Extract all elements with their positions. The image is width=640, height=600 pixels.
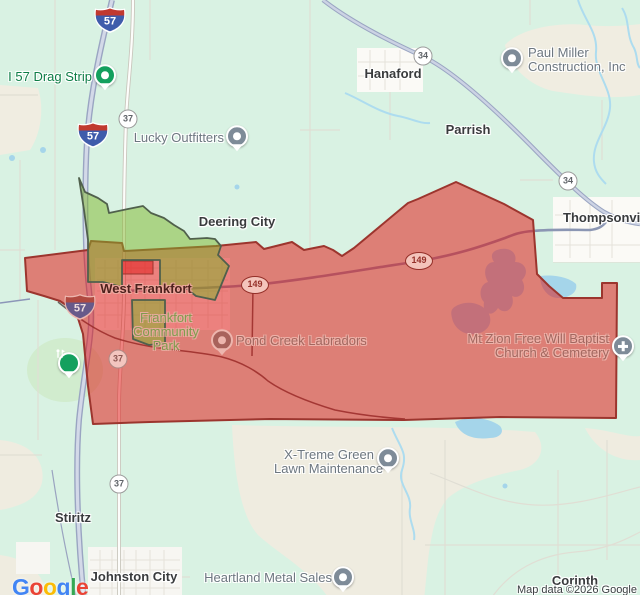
bottom-bar: [0, 595, 640, 600]
route-37-shield-tinted: 37: [109, 350, 128, 369]
route-149-shield: 149: [241, 276, 269, 294]
route-34-shield: 34: [414, 47, 433, 66]
poi-pin-mt-zion-church[interactable]: [612, 335, 634, 357]
poi-dot-icon: [233, 132, 241, 140]
poi-label-line: Lawn Maintenance: [274, 462, 374, 476]
town-label-johnston-city[interactable]: Johnston City: [91, 570, 178, 584]
poi-pin-pond-creek-labradors[interactable]: [211, 329, 233, 351]
poi-label-lucky-outfitters[interactable]: Lucky Outfitters: [127, 131, 224, 145]
poi-dot-icon: [218, 336, 226, 344]
poi-label-i57-drag-strip[interactable]: I 57 Drag Strip: [6, 70, 92, 84]
poi-dot-icon: [508, 54, 516, 62]
poi-label-line: Paul Miller: [528, 46, 626, 60]
route-34-shield: 34: [559, 172, 578, 191]
interstate-57-shield: 57: [94, 7, 126, 34]
poi-pin-lucky-outfitters[interactable]: [226, 125, 248, 147]
poi-pin-i57-drag-strip[interactable]: [94, 64, 116, 86]
interstate-57-shield-tinted: 57: [64, 294, 96, 321]
poi-pin-paul-miller[interactable]: [501, 47, 523, 69]
interstate-57-shield: 57: [77, 122, 109, 149]
poi-pin-xtreme-green[interactable]: [377, 447, 399, 469]
town-label-hanaford[interactable]: Hanaford: [364, 67, 421, 81]
park-label-line: Park: [133, 339, 199, 353]
poi-label-line: Church & Cemetery: [450, 346, 609, 360]
church-cross-icon: [614, 337, 632, 355]
map-canvas[interactable]: Hanaford Parrish Deering City West Frank…: [0, 0, 640, 600]
park-label-frankfort-community-park[interactable]: Frankfort Community Park: [133, 311, 199, 353]
town-label-thompsonville[interactable]: Thompsonville: [563, 211, 640, 225]
poi-dot-icon: [384, 454, 392, 462]
park-label-line: Community: [133, 325, 199, 339]
poi-dot-icon: [101, 71, 109, 79]
poi-label-xtreme-green[interactable]: X-Treme Green Lawn Maintenance: [274, 448, 374, 476]
route-149-shield: 149: [405, 252, 433, 270]
poi-label-pond-creek-labradors[interactable]: Pond Creek Labradors: [236, 334, 367, 348]
poi-label-line: Construction, Inc: [528, 60, 626, 74]
route-37-shield: 37: [119, 110, 138, 129]
poi-label-heartland-metal-sales[interactable]: Heartland Metal Sales: [194, 571, 332, 585]
town-label-stiritz[interactable]: Stiritz: [55, 511, 91, 525]
poi-label-line: Mt Zion Free Will Baptist: [450, 332, 609, 346]
poi-pin-golf-course[interactable]: [58, 352, 80, 374]
shield-number: 57: [94, 16, 126, 28]
town-label-parrish[interactable]: Parrish: [446, 123, 491, 137]
route-37-shield: 37: [110, 475, 129, 494]
park-label-line: Frankfort: [133, 311, 199, 325]
poi-label-mt-zion[interactable]: Mt Zion Free Will Baptist Church & Cemet…: [450, 332, 609, 360]
shield-number: 57: [77, 131, 109, 143]
poi-label-paul-miller[interactable]: Paul Miller Construction, Inc: [528, 46, 626, 74]
poi-dot-icon: [339, 573, 347, 581]
poi-label-line: X-Treme Green: [274, 448, 374, 462]
golfer-icon: [54, 348, 66, 360]
town-label-west-frankfort[interactable]: West Frankfort: [100, 282, 192, 296]
shield-number: 57: [64, 303, 96, 315]
town-label-deering-city[interactable]: Deering City: [199, 215, 276, 229]
poi-pin-heartland-metal-sales[interactable]: [332, 566, 354, 588]
